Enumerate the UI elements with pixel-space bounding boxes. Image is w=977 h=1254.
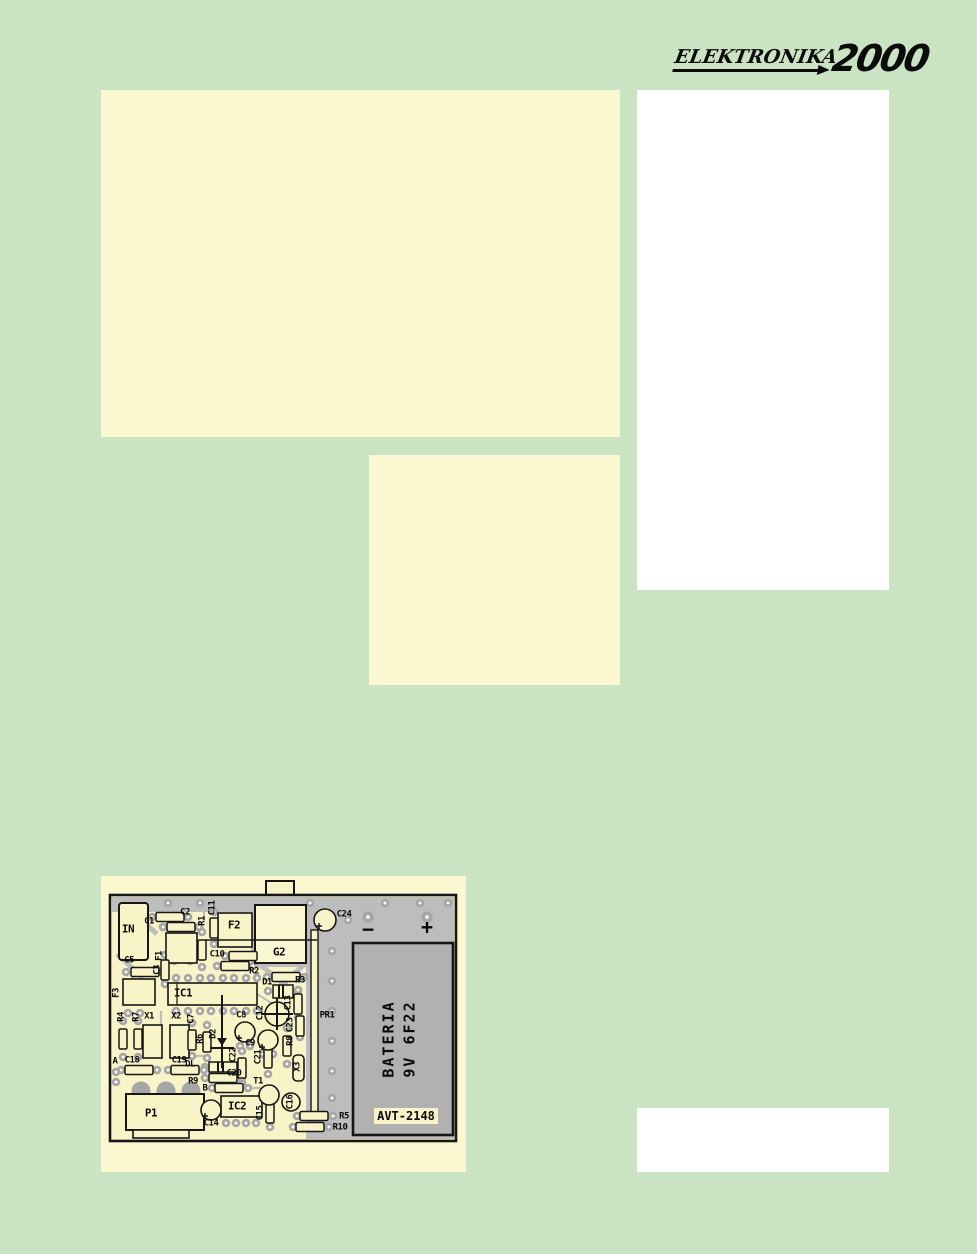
- pcb-label-g2: G2: [273, 947, 285, 958]
- pcb-label-c2: C2: [180, 909, 190, 918]
- pcb-label-r5: R5: [339, 1113, 349, 1122]
- pcb-label-c1: C1: [144, 918, 154, 927]
- pcb-kit-label: AVT-2148: [377, 1110, 435, 1122]
- pcb-label-a: A: [113, 1058, 118, 1067]
- logo-title: ELEKTRONIKA: [673, 46, 839, 68]
- pcb-figure: IN C1 C2 C5 C10 F2 G2 C24 R2 D1 R3 PR1 I…: [101, 876, 466, 1172]
- pcb-label-r3: R3: [295, 977, 305, 986]
- pcb-label-c16: C16: [287, 1095, 296, 1110]
- pcb-label-x2: X2: [171, 1013, 181, 1022]
- pcb-label-x1: X1: [144, 1013, 154, 1022]
- text-panel-bottom-right: [637, 1108, 889, 1172]
- pcb-battery-minus-mark: −: [362, 919, 374, 939]
- pcb-label-c20: C20: [227, 1070, 242, 1079]
- pcb-battery-text-line1: BATERIA: [382, 1000, 397, 1077]
- pcb-label-c18: C18: [125, 1057, 140, 1066]
- elektronika-2000-logo: ELEKTRONIKA 2000: [672, 28, 894, 74]
- pcb-label-r7: R7: [133, 1012, 142, 1022]
- pcb-label-in: IN: [122, 924, 134, 935]
- pcb-label-c11: C11: [209, 901, 218, 916]
- pcb-label-c13: C13: [285, 996, 294, 1011]
- pcb-label-r9: R9: [188, 1078, 198, 1087]
- pcb-label-t1: T1: [253, 1078, 263, 1087]
- pcb-label-c15: C15: [257, 1106, 266, 1121]
- pcb-label-r2: R2: [249, 968, 259, 977]
- pcb-label-c10: C10: [210, 951, 225, 960]
- pcb-label-f2: F2: [228, 920, 240, 931]
- pcb-label-r1: R1: [199, 916, 208, 926]
- pcb-label-c23: C23: [287, 1018, 296, 1033]
- pcb-label-c3: C3: [154, 965, 163, 975]
- pcb-label-r4: R4: [118, 1012, 127, 1022]
- pcb-label-dl: DL: [185, 1061, 195, 1070]
- pcb-label-x3: X3: [294, 1062, 303, 1072]
- pcb-label-f1: F1: [156, 951, 165, 961]
- pcb-label-r6: R6: [197, 1034, 206, 1044]
- pcb-battery-text-line2: 9V 6F22: [403, 1000, 418, 1077]
- pcb-label-p1: P1: [145, 1108, 157, 1119]
- pcb-label-c5: C5: [124, 957, 134, 966]
- pcb-label-r10: R10: [333, 1124, 348, 1133]
- pcb-label-r8: R8: [287, 1036, 296, 1046]
- pcb-label-f3: F3: [113, 988, 122, 998]
- pcb-label-c22: C22: [230, 1048, 239, 1063]
- pcb-label-pr1: PR1: [320, 1012, 335, 1021]
- pcb-label-d1: D1: [262, 979, 272, 988]
- pcb-label-c7: C7: [188, 1014, 197, 1024]
- pcb-label-ic1: IC1: [174, 988, 192, 999]
- logo-wordmark: ELEKTRONIKA: [672, 46, 839, 74]
- pcb-label-c14: C14: [204, 1120, 219, 1129]
- text-panel-top: [101, 90, 620, 437]
- logo-arrow-icon: [672, 69, 819, 72]
- logo-year: 2000: [830, 44, 930, 74]
- pcb-label-c8: C8: [236, 1012, 246, 1021]
- pcb-label-ic2: IC2: [228, 1101, 246, 1112]
- text-panel-middle: [369, 455, 620, 685]
- pcb-battery-plus-mark: +: [421, 917, 433, 937]
- text-panel-right: [637, 90, 889, 590]
- magazine-page: ELEKTRONIKA 2000: [0, 0, 977, 1254]
- pcb-label-d2: D2: [210, 1029, 219, 1039]
- pcb-label-c21: C21: [255, 1050, 264, 1065]
- pcb-label-c24: C24: [337, 911, 352, 920]
- pcb-label-b: B: [203, 1085, 208, 1094]
- pcb-label-c12: C12: [257, 1006, 266, 1021]
- pcb-label-c9: C9: [245, 1040, 255, 1049]
